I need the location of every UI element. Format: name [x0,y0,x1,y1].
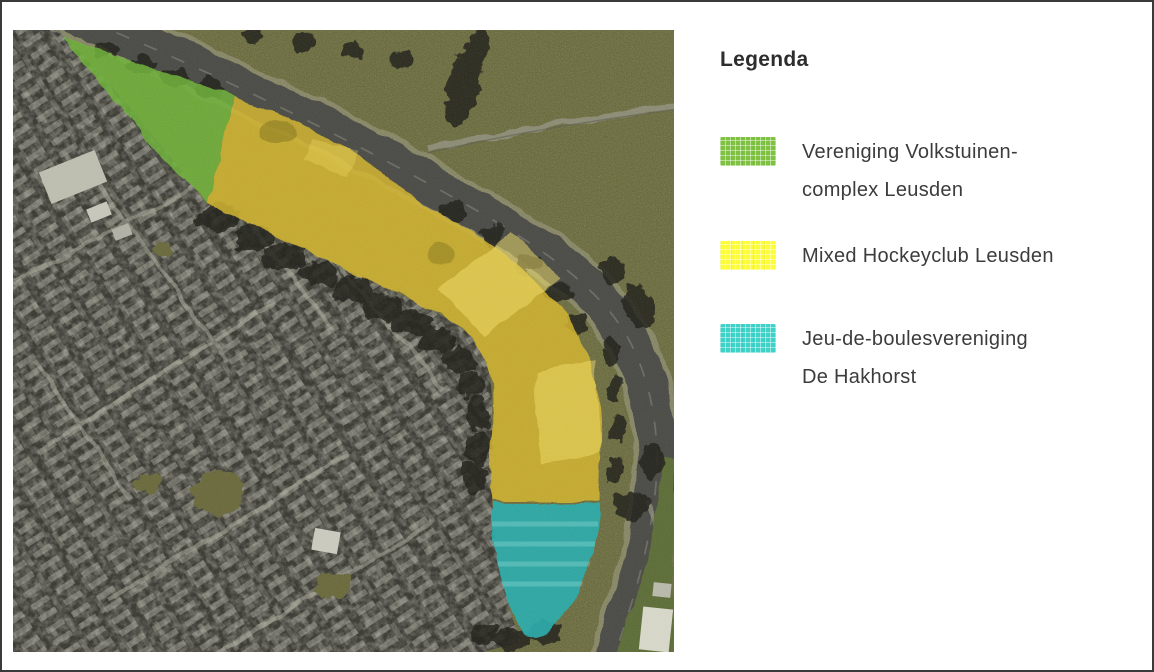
legend-item-hockey: Mixed Hockeyclub Leusden [720,237,1130,275]
legend: Legenda Vereniging Volkstuinen- complex … [720,48,1130,396]
legend-item-label: Mixed Hockeyclub Leusden [802,237,1054,275]
allotment-swatch [720,137,776,166]
aerial-map [13,30,674,652]
page-frame: Legenda Vereniging Volkstuinen- complex … [0,0,1154,672]
boules-swatch [720,324,776,353]
legend-item-label: Jeu-de-boulesvereniging De Hakhorst [802,320,1028,396]
legend-item-boules: Jeu-de-boulesvereniging De Hakhorst [720,320,1130,396]
hockey-swatch [720,241,776,270]
legend-item-label: Vereniging Volkstuinen- complex Leusden [802,133,1018,209]
legend-title: Legenda [720,48,1130,72]
map-panel [13,30,674,652]
legend-item-allotment: Vereniging Volkstuinen- complex Leusden [720,133,1130,209]
